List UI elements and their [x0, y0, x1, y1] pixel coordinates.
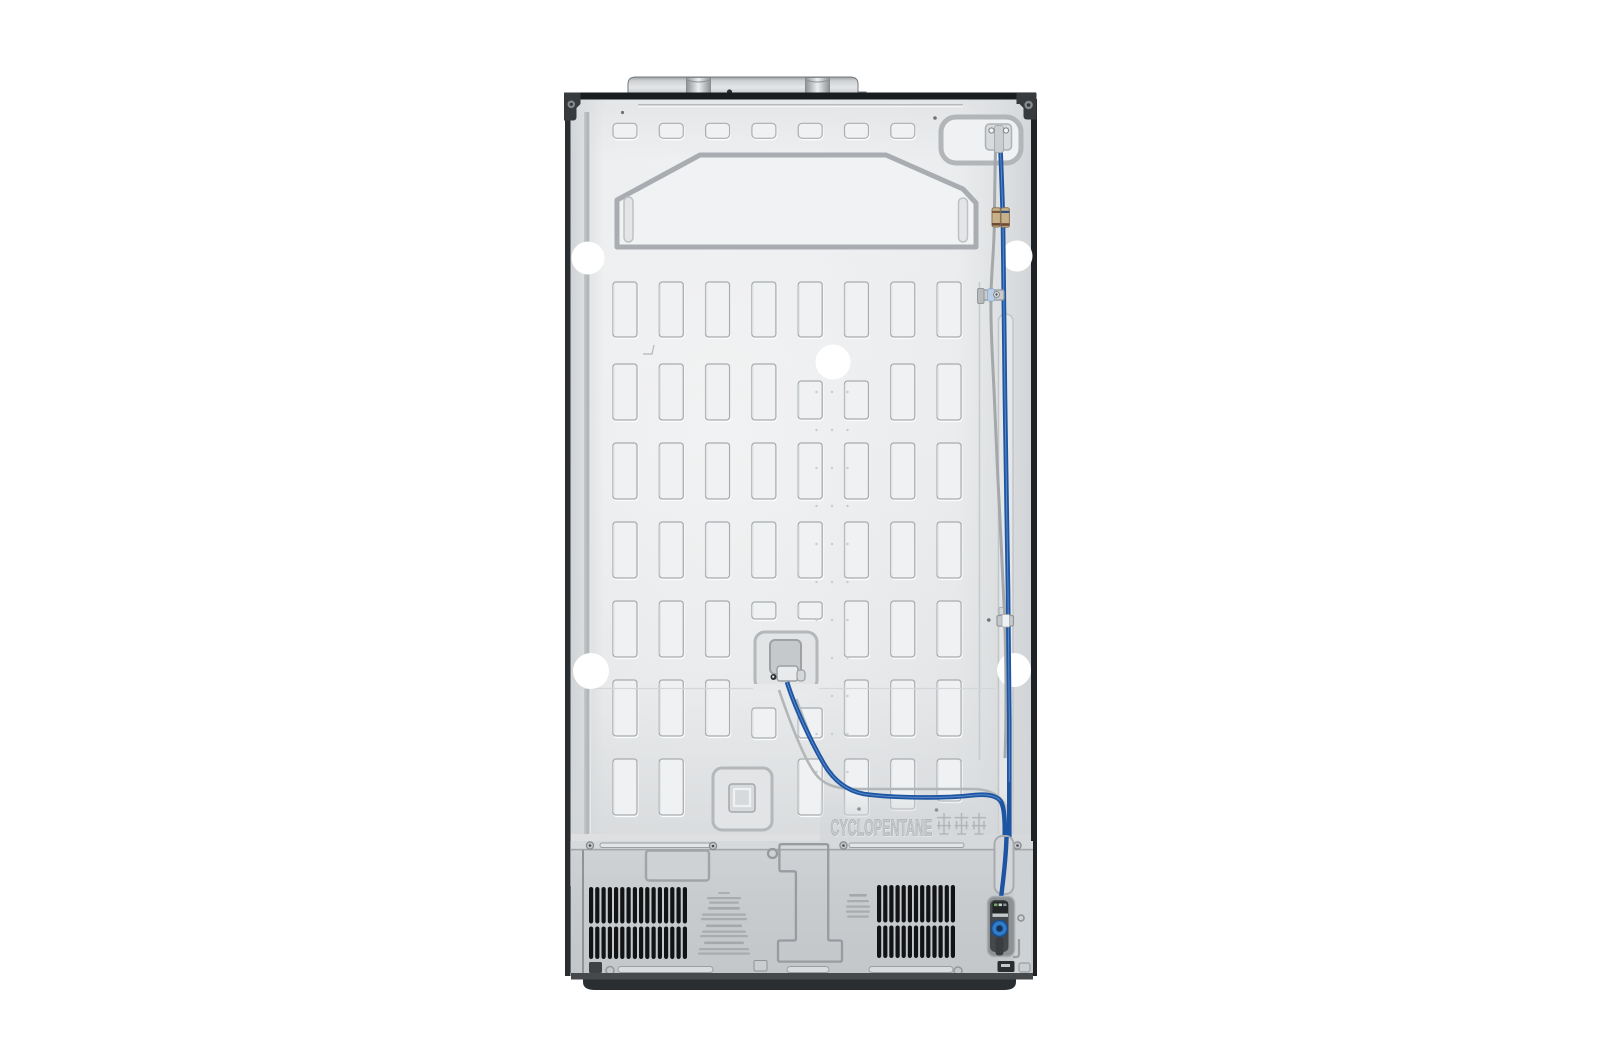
svg-text:CYCLOPENTANE: CYCLOPENTANE: [831, 814, 933, 840]
